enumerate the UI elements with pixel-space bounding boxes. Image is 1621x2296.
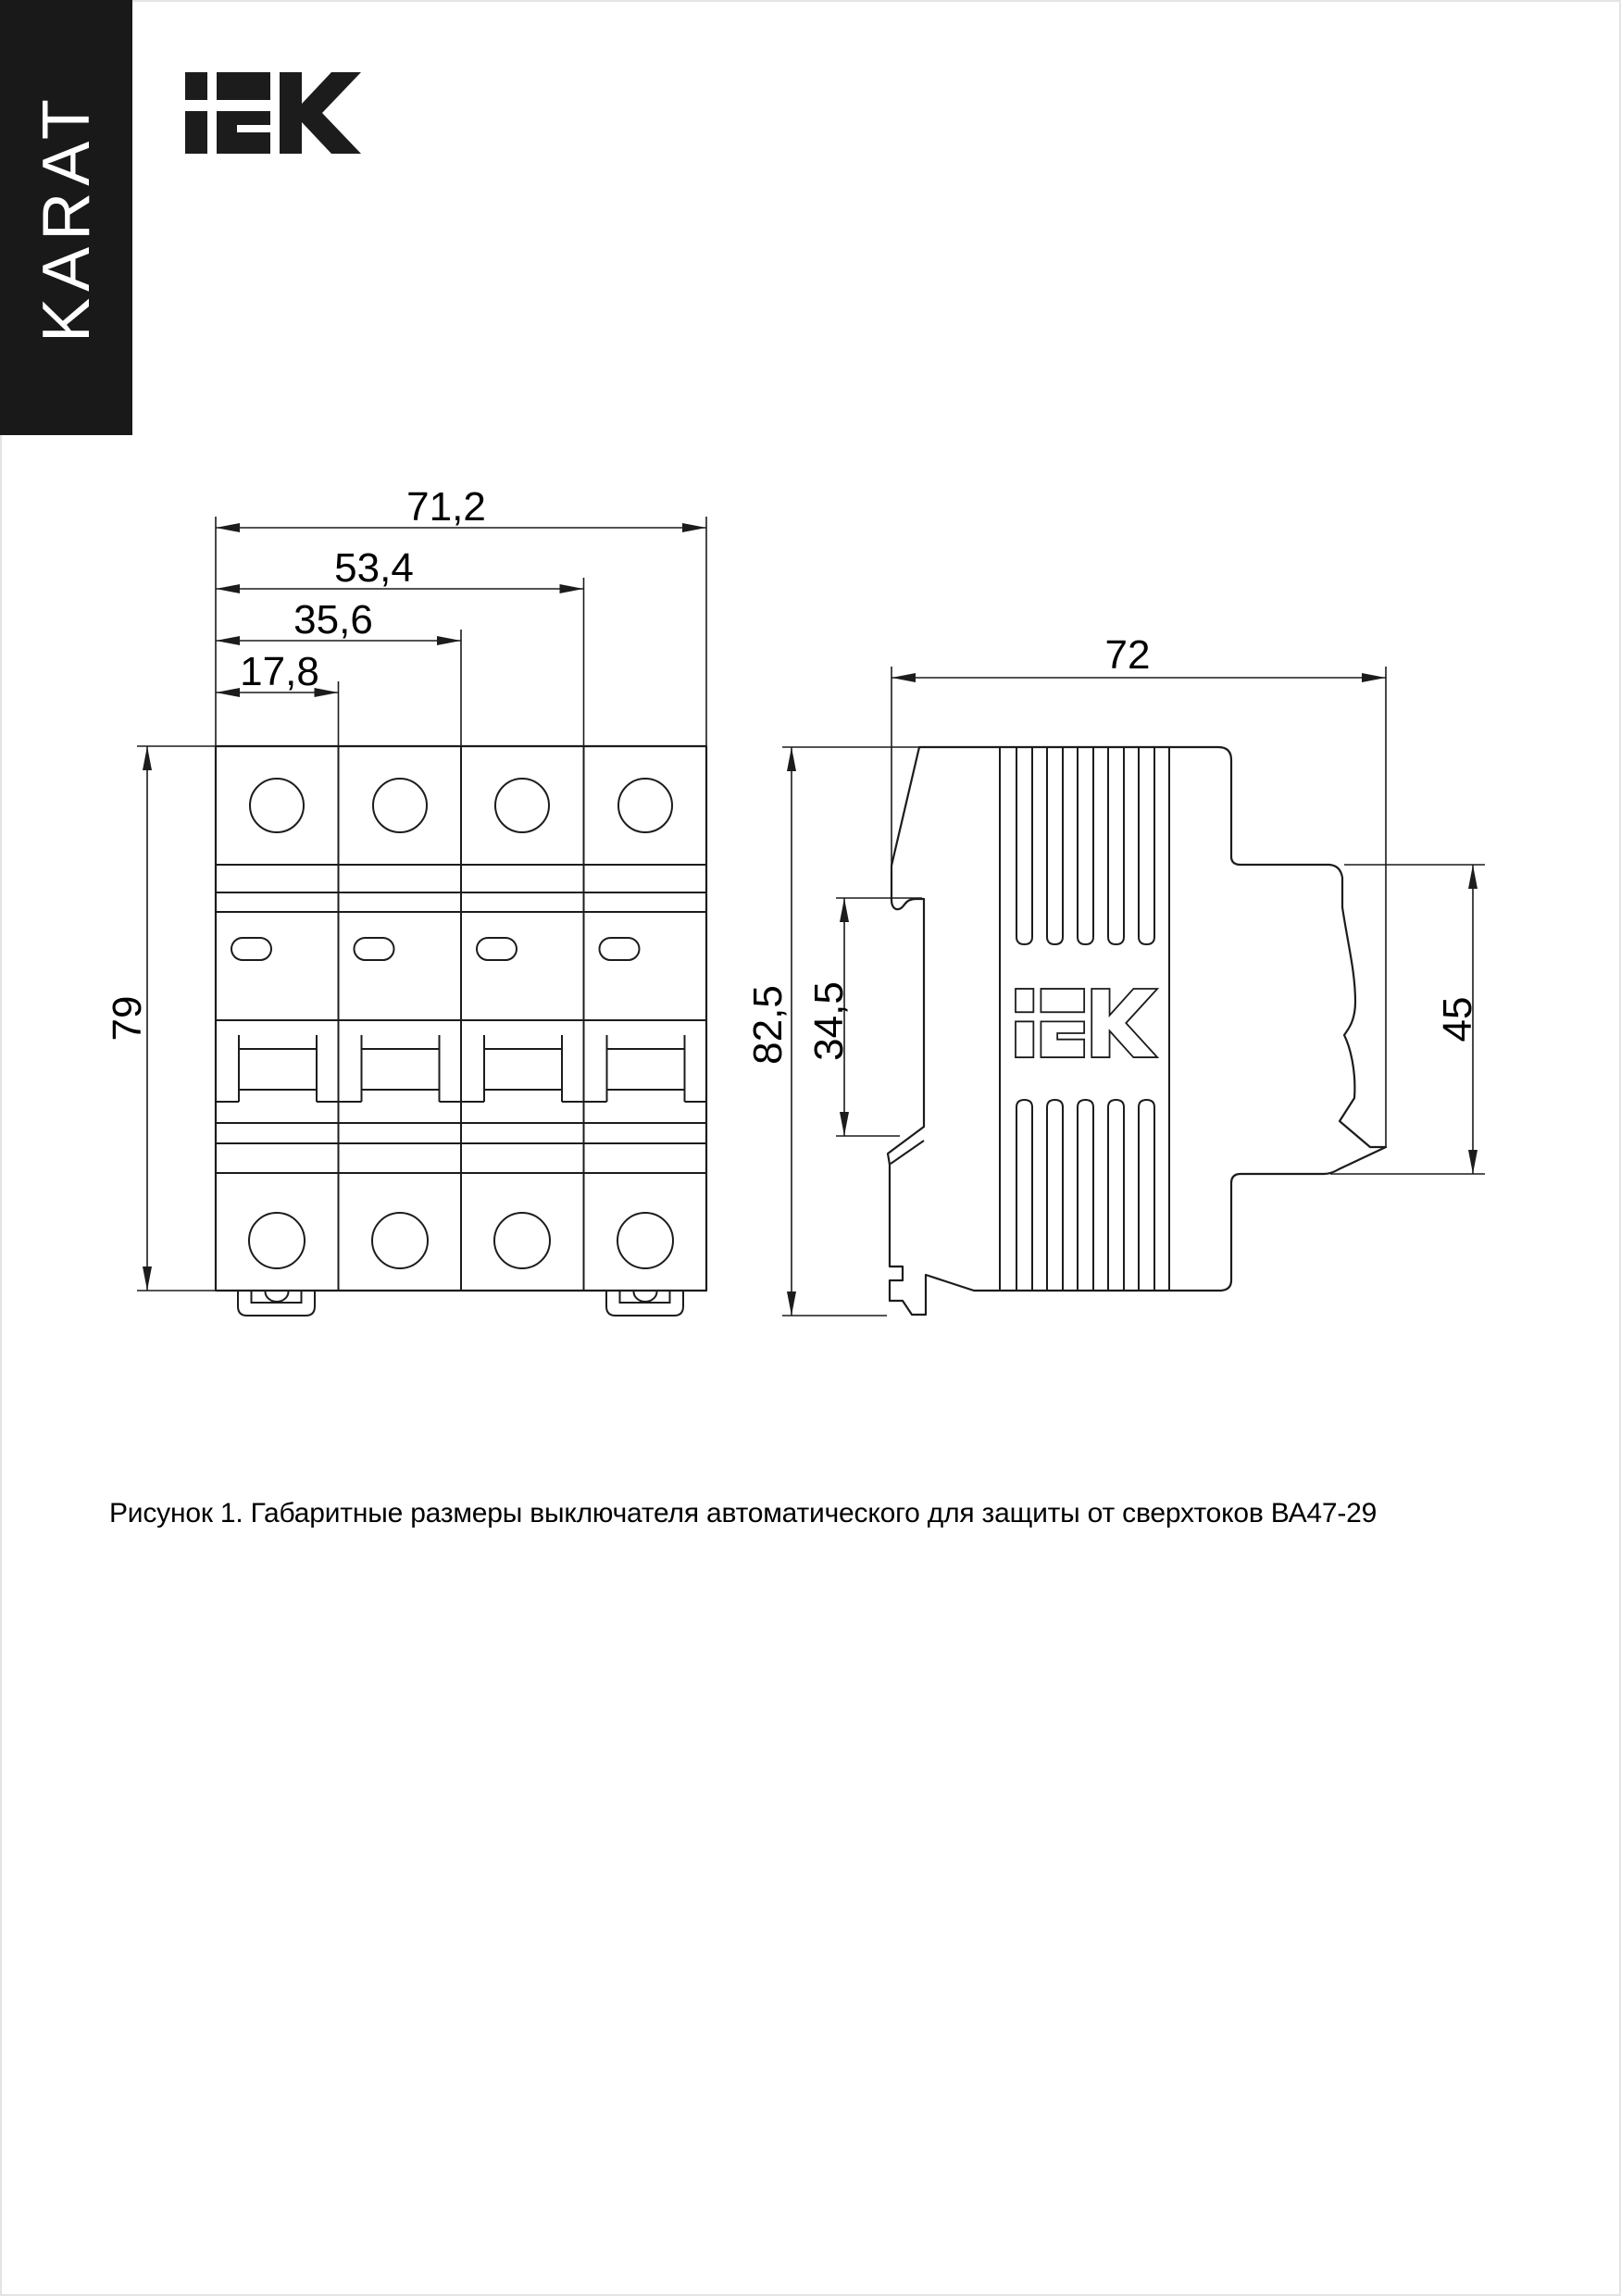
iek-embossed-logo xyxy=(1016,989,1157,1057)
dim-label-71-2: 71,2 xyxy=(406,484,486,530)
side-dimensions: 72 82,5 34,5 45 xyxy=(745,632,1485,1316)
figure-caption: Рисунок 1. Габаритные размеры выключател… xyxy=(109,1498,1377,1529)
pole-dividers xyxy=(339,746,584,1291)
side-panel-borders xyxy=(1000,747,1169,1291)
front-view: 71,2 53,4 35,6 17,8 79 xyxy=(105,484,706,1316)
drawing-canvas: 71,2 53,4 35,6 17,8 79 xyxy=(0,0,1621,2296)
dim-label-34-5: 34,5 xyxy=(806,981,852,1061)
dim-label-53-4: 53,4 xyxy=(334,545,414,591)
dim-label-82-5: 82,5 xyxy=(745,985,791,1065)
din-clips-front xyxy=(238,1291,683,1316)
datasheet-page: KARAT xyxy=(0,0,1621,2296)
dim-label-79: 79 xyxy=(105,996,150,1042)
upper-vent-slots xyxy=(1016,748,1154,944)
side-view: 72 82,5 34,5 45 xyxy=(745,632,1485,1316)
breaker-body-side xyxy=(888,747,1386,1315)
label-windows xyxy=(231,938,640,960)
dim-label-35-6: 35,6 xyxy=(293,597,373,643)
front-dimensions: 71,2 53,4 35,6 17,8 79 xyxy=(105,484,706,1291)
iek-logo xyxy=(185,72,361,154)
dim-label-72: 72 xyxy=(1105,632,1151,678)
dim-label-17-8: 17,8 xyxy=(240,649,319,694)
lower-vent-slots xyxy=(1016,1100,1154,1290)
din-latch-edge xyxy=(891,1141,924,1164)
dim-label-45: 45 xyxy=(1435,997,1480,1042)
